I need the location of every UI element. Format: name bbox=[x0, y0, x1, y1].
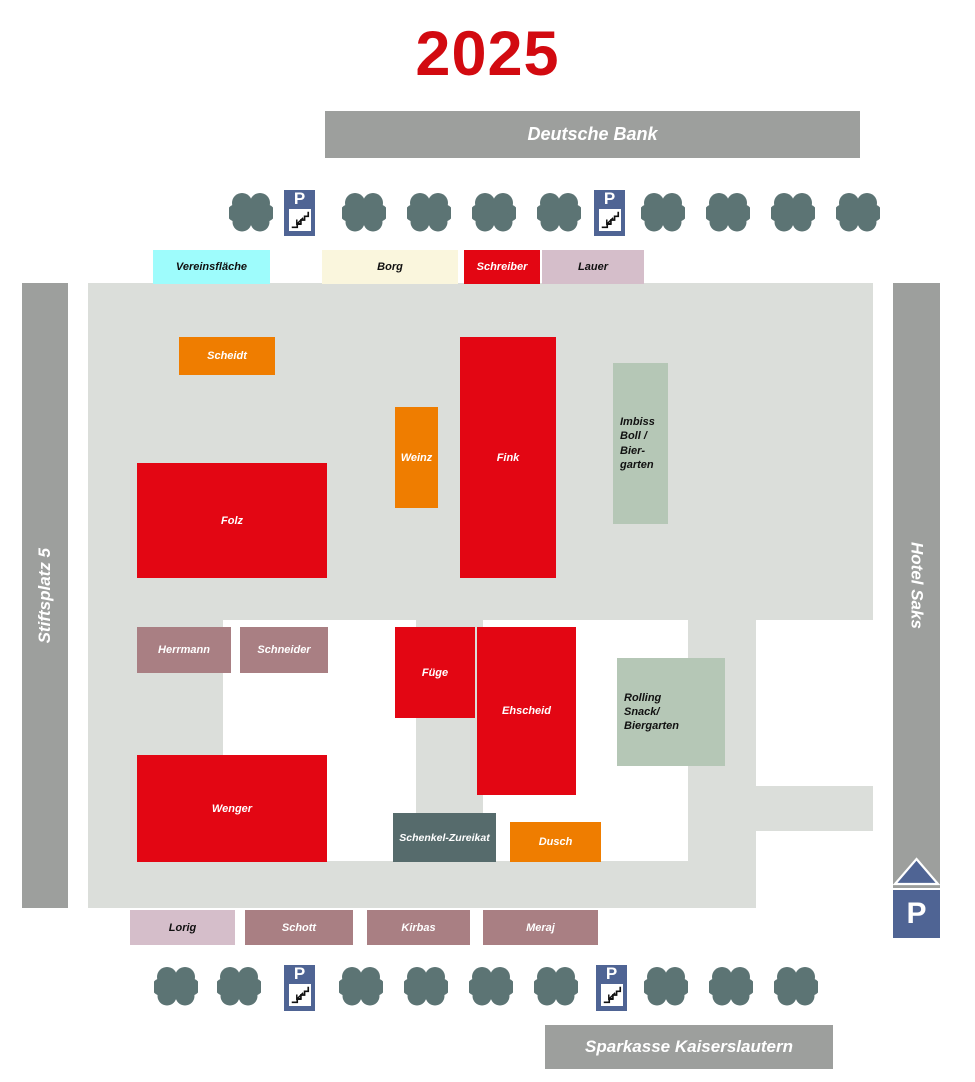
stairs-icon bbox=[599, 209, 621, 231]
parking-p-label: P bbox=[294, 965, 305, 983]
building-deutsche-bank: Deutsche Bank bbox=[325, 111, 860, 158]
parking-sign: P bbox=[893, 890, 940, 938]
street-hotel-saks: Hotel Saks bbox=[893, 283, 940, 888]
stairs-icon bbox=[289, 209, 311, 231]
tree-icon bbox=[472, 192, 516, 232]
stairs-icon bbox=[601, 984, 623, 1006]
stall-label: Ehscheid bbox=[502, 705, 551, 717]
stall-scheidt: Scheidt bbox=[179, 337, 275, 375]
tree-icon bbox=[217, 966, 261, 1006]
parking-p-label: P bbox=[606, 965, 617, 983]
stall-label: Rolling Snack/ Biergarten bbox=[624, 691, 679, 734]
tree-icon bbox=[709, 966, 753, 1006]
stall-fuege: Füge bbox=[395, 627, 475, 718]
stall-label: Schenkel-Zureikat bbox=[399, 832, 489, 844]
parking-stairs-sign: P bbox=[596, 965, 627, 1011]
tree-icon bbox=[229, 192, 273, 232]
stall-schenkel-zureikat: Schenkel-Zureikat bbox=[393, 813, 496, 862]
exit-arrow-icon bbox=[893, 856, 940, 887]
tree-icon bbox=[771, 192, 815, 232]
stall-label: Weinz bbox=[401, 452, 433, 464]
stall-herrmann: Herrmann bbox=[137, 627, 231, 673]
stall-schott: Schott bbox=[245, 910, 353, 945]
stairs-icon bbox=[289, 984, 311, 1006]
tree-icon bbox=[706, 192, 750, 232]
tree-icon bbox=[342, 192, 386, 232]
parking-stairs-sign: P bbox=[284, 190, 315, 236]
stall-label: Herrmann bbox=[158, 644, 210, 656]
tree-icon bbox=[154, 966, 198, 1006]
stall-kirbas: Kirbas bbox=[367, 910, 470, 945]
page-title: 2025 bbox=[0, 18, 975, 90]
parking-stairs-sign: P bbox=[594, 190, 625, 236]
stall-label: Imbiss Boll / Bier- garten bbox=[620, 415, 655, 472]
stall-label: Scheidt bbox=[207, 350, 247, 362]
stall-label: Lauer bbox=[578, 261, 608, 273]
tree-icon bbox=[641, 192, 685, 232]
stall-fink: Fink bbox=[460, 337, 556, 578]
stall-label: Lorig bbox=[169, 922, 197, 934]
stall-label: Schneider bbox=[257, 644, 310, 656]
parking-p-label: P bbox=[294, 190, 305, 208]
stall-label: Füge bbox=[422, 667, 448, 679]
stall-label: Wenger bbox=[212, 803, 252, 815]
stall-ehscheid: Ehscheid bbox=[477, 627, 576, 795]
stall-label: Schott bbox=[282, 922, 316, 934]
stall-lauer: Lauer bbox=[542, 250, 644, 284]
stall-imbiss-boll-biergarten: Imbiss Boll / Bier- garten bbox=[613, 363, 668, 524]
stall-folz: Folz bbox=[137, 463, 327, 578]
stall-label: Dusch bbox=[539, 836, 573, 848]
street-stiftsplatz: Stiftsplatz 5 bbox=[22, 283, 68, 908]
building-block bbox=[756, 620, 915, 786]
stall-label: Kirbas bbox=[401, 922, 435, 934]
stall-label: Fink bbox=[497, 452, 520, 464]
stall-schreiber: Schreiber bbox=[464, 250, 540, 284]
stall-label: Vereinsfläche bbox=[176, 261, 247, 273]
street-label: Hotel Saks bbox=[907, 542, 927, 629]
building-label: Deutsche Bank bbox=[527, 124, 657, 145]
stall-vereinsflaeche: Vereinsfläche bbox=[153, 250, 270, 284]
parking-stairs-sign: P bbox=[284, 965, 315, 1011]
tree-icon bbox=[774, 966, 818, 1006]
tree-icon bbox=[469, 966, 513, 1006]
stall-dusch: Dusch bbox=[510, 822, 601, 862]
stall-meraj: Meraj bbox=[483, 910, 598, 945]
building-sparkasse: Sparkasse Kaiserslautern bbox=[545, 1025, 833, 1069]
stall-lorig: Lorig bbox=[130, 910, 235, 945]
tree-icon bbox=[537, 192, 581, 232]
tree-icon bbox=[407, 192, 451, 232]
stall-label: Meraj bbox=[526, 922, 555, 934]
street-label: Stiftsplatz 5 bbox=[35, 548, 55, 643]
stall-schneider: Schneider bbox=[240, 627, 328, 673]
stall-label: Folz bbox=[221, 515, 243, 527]
tree-icon bbox=[339, 966, 383, 1006]
stall-weinz: Weinz bbox=[395, 407, 438, 508]
parking-p-label: P bbox=[906, 897, 926, 931]
stall-wenger: Wenger bbox=[137, 755, 327, 862]
market-site-plan: 2025 Deutsche Bank P P Stiftsplatz 5 Hot… bbox=[0, 0, 975, 1082]
stall-borg: Borg bbox=[322, 250, 458, 284]
tree-icon bbox=[404, 966, 448, 1006]
tree-icon bbox=[836, 192, 880, 232]
parking-p-label: P bbox=[604, 190, 615, 208]
stall-label: Schreiber bbox=[477, 261, 528, 273]
stall-label: Borg bbox=[377, 261, 403, 273]
tree-icon bbox=[534, 966, 578, 1006]
building-label: Sparkasse Kaiserslautern bbox=[585, 1037, 793, 1057]
tree-icon bbox=[644, 966, 688, 1006]
stall-rolling-snack-biergarten: Rolling Snack/ Biergarten bbox=[617, 658, 725, 766]
